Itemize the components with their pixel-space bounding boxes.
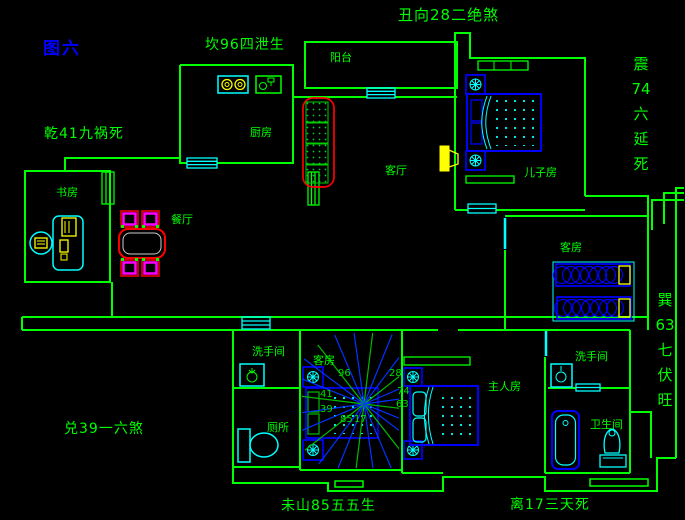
bottom-rooms-walls <box>233 330 630 483</box>
room-label-balcony: 阳台 <box>330 51 352 64</box>
room-label-kitchen: 厨房 <box>250 126 272 139</box>
annotation-dui: 兑39一六煞 <box>64 421 144 437</box>
compass-lines <box>290 330 439 479</box>
annotation-top-center: 丑向28二绝煞 <box>398 7 499 23</box>
pillow <box>413 418 426 442</box>
annotation-mountain: 未山85五五生 <box>281 498 376 514</box>
center-room-furniture <box>290 330 439 479</box>
balcony-window <box>367 88 395 98</box>
room-label-toilet: 厕所 <box>267 421 289 434</box>
bathroom-step-wall <box>630 412 651 458</box>
room-label-guest-center: 客房 <box>313 354 335 367</box>
wardrobe <box>478 61 528 70</box>
room-label-guest-right: 客房 <box>560 241 582 254</box>
sofa-cushion <box>306 102 328 122</box>
burner <box>222 80 232 90</box>
compass-number: 96 <box>338 369 351 379</box>
mattress-dots <box>436 391 476 442</box>
dining-table-inner <box>123 233 161 254</box>
compass-number: 74 <box>397 387 410 397</box>
annotation-qian: 乾41九祸死 <box>44 126 124 142</box>
pillow <box>471 100 482 121</box>
right-washroom-fixtures <box>551 364 626 469</box>
balcony-walls <box>305 42 457 88</box>
sofa-cushion <box>306 165 328 183</box>
kitchen-window <box>187 158 217 168</box>
room-label-washroom-left: 洗手间 <box>252 345 285 358</box>
long-wall <box>22 317 648 330</box>
annotation-zhen: 震 74 六 延 死 <box>628 52 654 177</box>
annotation-xun: 巽 63 七 伏 旺 <box>652 288 678 413</box>
toilet-bowl <box>604 429 620 453</box>
kitchen-furniture <box>218 76 281 93</box>
chair-seat <box>35 238 47 248</box>
room-label-living: 客厅 <box>385 164 407 177</box>
mattress-dots <box>492 100 537 146</box>
burner <box>235 80 245 90</box>
pillow <box>308 392 319 412</box>
faucet <box>268 78 274 86</box>
mouse <box>61 254 67 260</box>
porch-step-center <box>335 481 363 487</box>
compass-number: 85 <box>340 415 353 425</box>
room-label-study: 书房 <box>56 186 78 199</box>
toilet-bowl <box>250 433 278 457</box>
sofa-cushion <box>306 123 328 143</box>
compass-number: 17 <box>354 415 367 425</box>
sofa <box>303 98 334 187</box>
study-furniture <box>30 216 83 270</box>
compass-number: 39 <box>320 405 333 415</box>
wash-basin <box>240 364 264 386</box>
room-label-washroom-right: 洗手间 <box>575 350 608 363</box>
kitchen-walls <box>177 65 293 163</box>
toilet-tank <box>238 429 250 462</box>
shelf <box>466 176 514 183</box>
pillow <box>471 123 482 144</box>
left-washroom-fixtures <box>238 364 278 462</box>
guest-room-furniture <box>553 262 634 321</box>
room-label-son: 儿子房 <box>524 166 557 179</box>
compass-number: 41 <box>320 390 333 400</box>
corridor-guest-walls <box>505 196 648 330</box>
study-window <box>102 172 114 204</box>
entry-steps-topright <box>652 188 684 230</box>
room-label-bathroom: 卫生间 <box>590 418 623 431</box>
chair <box>30 232 52 254</box>
cyan-windows <box>187 88 600 391</box>
room-label-master: 主人房 <box>488 380 521 393</box>
green-windows <box>102 172 319 205</box>
annotation-kan: 坎96四泄生 <box>205 37 285 53</box>
compass-number: 63 <box>396 400 409 410</box>
toilet-base <box>600 455 626 467</box>
annotation-li: 离17三天死 <box>510 497 590 513</box>
dining-furniture <box>119 211 165 276</box>
porch-step-right <box>590 479 648 486</box>
keyboard <box>60 240 68 252</box>
wardrobe <box>404 357 470 365</box>
figure-label: 图六 <box>43 34 81 59</box>
room-label-dining: 餐厅 <box>171 213 193 226</box>
drain <box>563 421 568 426</box>
pillow <box>619 266 630 284</box>
cad-floorplan-screen: 图六 丑向28二绝煞 坎96四泄生 乾41九祸死 震 74 六 延 死 巽 63… <box>0 0 685 520</box>
son-room-furniture <box>466 61 541 183</box>
floorplan-drawing-canvas[interactable] <box>0 0 685 520</box>
sofa-cushion <box>306 144 328 164</box>
dining-chairs <box>121 211 159 276</box>
master-room-furniture <box>404 357 478 459</box>
longwall-window <box>242 317 270 329</box>
compass-number: 28 <box>389 369 402 379</box>
